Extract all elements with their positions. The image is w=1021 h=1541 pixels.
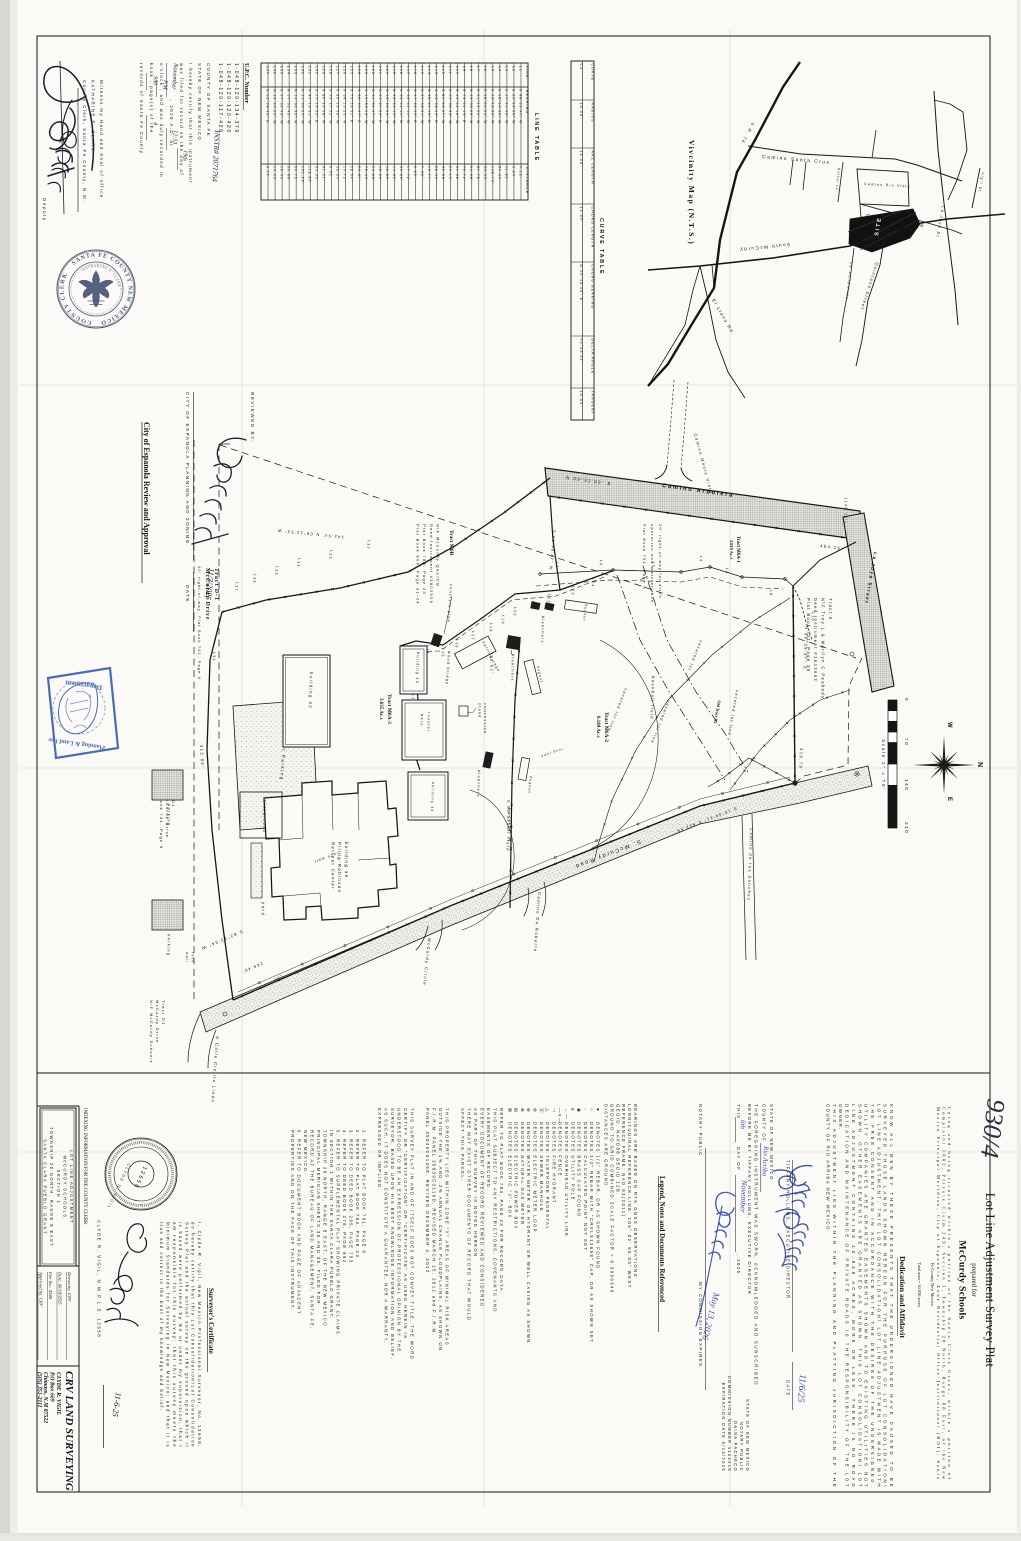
svg-text:N 27°38'21" W: N 27°38'21" W (420, 89, 424, 125)
svg-text:LINE ADJUSTMENT CONTAINS 10.83: LINE ADJUSTMENT CONTAINS 10.838 ACRES, M… (851, 1104, 856, 1488)
svg-text:⊗: ⊗ (533, 1108, 538, 1113)
svg-text:91.51': 91.51' (322, 166, 326, 181)
svg-text:L28: L28 (329, 66, 333, 75)
svg-text:Dedication and Affidavit: Dedication and Affidavit (898, 1256, 907, 1338)
svg-text:L10: L10 (455, 66, 459, 75)
svg-text:RECORD AT THE BUREAU OF LAND M: RECORD AT THE BUREAU OF LAND MANAGEMENT,… (310, 1130, 315, 1330)
svg-text:⊣: ⊣ (551, 1108, 556, 1114)
svg-text:30.03': 30.03' (483, 166, 487, 181)
svg-text:DAY OF: DAY OF (736, 1147, 741, 1171)
svg-text:118.85': 118.85' (308, 166, 312, 184)
svg-text:Rio Arriba: Rio Arriba (760, 1145, 770, 1177)
svg-text:S 01°22'50" W: S 01°22'50" W (476, 89, 480, 124)
svg-text:50.00': 50.00' (315, 166, 319, 181)
svg-text:STATE OF NEW MEXICO: STATE OF NEW MEXICO (197, 63, 202, 141)
svg-text:7.12': 7.12' (518, 166, 522, 179)
svg-text:40' right-of-way, Plat Book 76: 40' right-of-way, Plat Book 761, Page 6 (197, 566, 201, 680)
svg-text:DENOTES UTILITY POLE: DENOTES UTILITY POLE (570, 1122, 575, 1201)
svg-text:N 56°48'56" E: N 56°48'56" E (579, 265, 583, 302)
svg-text:AS PART OF THIS SURVEY IS NOTE: AS PART OF THIS SURVEY IS NOTED HEREON. (473, 1108, 478, 1260)
svg-text:L18: L18 (399, 66, 403, 75)
svg-text:L17: L17 (406, 66, 410, 75)
svg-text:14.90': 14.90' (272, 166, 276, 181)
svg-text:S 86°32'08" W: S 86°32'08" W (322, 89, 326, 124)
svg-text:⊗: ⊗ (526, 1108, 531, 1113)
svg-text:GROUND TO GRID COMBINED SCALE: GROUND TO GRID COMBINED SCALE FACTOR = 0… (609, 1104, 614, 1294)
svg-text:19th: 19th (181, 150, 188, 161)
svg-text:L14: L14 (427, 66, 431, 75)
svg-text:DATE: DATE (786, 1380, 791, 1397)
svg-text:Tract 6: Tract 6 (828, 598, 833, 621)
svg-text:L35: L35 (279, 66, 283, 75)
svg-text:THIS PROPERTY LIES WITHIN ZONE: THIS PROPERTY LIES WITHIN ZONE "X" AREAS… (445, 1108, 450, 1346)
svg-text:3. REFER TO DEED BOOK 295, P: 3. REFER TO DEED BOOK 295, PAGE 753 (349, 1130, 354, 1264)
svg-text:LOT LINE ADJUSTMENT. THIS LOT: LOT LINE ADJUSTMENT. THIS LOT CONSOLIDAT… (876, 1104, 881, 1488)
svg-text:N\F McCurdy QALICB: N\F McCurdy QALICB (435, 524, 440, 587)
svg-text:12:53: 12:53 (171, 130, 178, 144)
svg-text:THIS SURVEY PLAT IN AND OF ITS: THIS SURVEY PLAT IN AND OF ITSELF DOES N… (410, 1108, 415, 1360)
svg-text:Retreat Center: Retreat Center (330, 842, 335, 890)
svg-text:TOWNSHIP 20 NORTH, RANGE 8 EAS: TOWNSHIP 20 NORTH, RANGE 8 EAST, OF THE … (323, 1130, 328, 1327)
svg-text:4: 4 (152, 122, 159, 125)
svg-text:S 75°59'31" E: S 75°59'31" E (350, 89, 354, 124)
svg-text:S 84°53'27" W: S 84°53'27" W (441, 89, 445, 124)
svg-text:BEARING: BEARING (525, 90, 529, 115)
svg-text:81.78': 81.78' (476, 166, 480, 181)
svg-text:28.43': 28.43' (434, 166, 438, 181)
svg-text:S 75°54'13" E: S 75°54'13" E (462, 89, 466, 124)
svg-text:CRV LAND SURVEYING: CRV LAND SURVEYING (63, 1371, 75, 1491)
svg-text:PRINCIPAL MERIDIAN SHEETS 35 A: PRINCIPAL MERIDIAN SHEETS 35 AND 35, FIL… (316, 1130, 321, 1305)
svg-text:30.88': 30.88' (287, 166, 291, 181)
svg-text:79.72': 79.72' (462, 166, 466, 181)
svg-text:N 19°53'02" W: N 19°53'02" W (469, 89, 473, 125)
svg-text:THERE MAY EXIST OTHER DOCUMENT: THERE MAY EXIST OTHER DOCUMENTS OF RECOR… (467, 1108, 472, 1321)
svg-text:REFER TO PLAT BOOK 783, PAGE 2: REFER TO PLAT BOOK 783, PAGE 23 FOR RECO… (499, 1108, 504, 1295)
svg-text:MY COMMISSION EXPIRES: MY COMMISSION EXPIRES (698, 1282, 703, 1367)
svg-text:Drawn by: CRV: Drawn by: CRV (67, 1271, 72, 1303)
svg-text:N 07°02'42" W: N 07°02'42" W (279, 89, 283, 125)
svg-text:yard: yard (261, 902, 266, 917)
svg-text:L23: L23 (364, 66, 368, 75)
svg-text:COUNTY OF SANTA FE: COUNTY OF SANTA FE (206, 63, 211, 137)
svg-text:930: 930 (151, 76, 158, 85)
svg-text:CERTIFY OR "CERTIFICATION" OR: CERTIFY OR "CERTIFICATION" OR "CERTIFICA… (403, 1108, 408, 1339)
svg-text:6.92': 6.92' (329, 166, 333, 179)
svg-text:RADIUS: RADIUS (591, 103, 595, 123)
svg-text:L33: L33 (294, 66, 298, 75)
svg-text:11/6/25: 11/6/25 (795, 1374, 807, 1403)
svg-text:COUNTY OF RIO ARRIBA NEW MEXIC: COUNTY OF RIO ARRIBA NEW MEXICO (826, 1104, 831, 1231)
svg-text:101.26': 101.26' (301, 166, 305, 184)
svg-text:NEW MEXICO.: NEW MEXICO. (303, 1130, 308, 1175)
svg-text:CITY OF ESPANOLA PLANNING AND: CITY OF ESPANOLA PLANNING AND ZONING (185, 392, 190, 545)
svg-text:L3: L3 (725, 568, 729, 575)
svg-text:S 86°26'56" W: S 86°26'56" W (336, 89, 340, 124)
svg-text:DENOTES CALCULATED POINT NOT S: DENOTES CALCULATED POINT NOT SET (583, 1122, 588, 1251)
svg-text:BEARINGS ARE BASED ON RTK GNSS: BEARINGS ARE BASED ON RTK GNSS OBSERVATI… (633, 1104, 638, 1278)
svg-text:Surveyor's Certificate: Surveyor's Certificate (207, 1288, 215, 1354)
svg-text:18.69': 18.69' (378, 166, 382, 181)
svg-text:16.43': 16.43' (279, 166, 283, 181)
svg-text:F.I.R.M. PANEL 35039C3110D, RE: F.I.R.M. PANEL 35039C3110D, REVISED MARC… (432, 1108, 437, 1336)
svg-text:Scale 1" = 70': Scale 1" = 70' (880, 739, 886, 791)
svg-text:L16: L16 (413, 66, 417, 75)
svg-text:△: △ (545, 1108, 550, 1113)
svg-text:N 42°29'03" W: N 42°29'03" W (385, 89, 389, 125)
svg-text:Tract M6B: Tract M6B (448, 530, 454, 556)
svg-text:17.72': 17.72' (406, 166, 410, 181)
svg-text:10.00': 10.00' (579, 103, 583, 119)
svg-text:28.94': 28.94' (350, 166, 354, 181)
svg-text:CURVE: CURVE (591, 64, 595, 82)
svg-text:L31: L31 (308, 66, 312, 75)
svg-text:barn: barn (420, 714, 424, 727)
svg-text:rock: rock (191, 952, 195, 964)
svg-text:S 17°19'50" E: S 17°19'50" E (315, 89, 319, 124)
svg-text:SHOWN. OTHER EASEMENTS ARE GRA: SHOWN. OTHER EASEMENTS ARE GRANTED AS SH… (857, 1104, 862, 1488)
svg-text:S 13°52'16" W: S 13°52'16" W (455, 89, 459, 124)
svg-text:DENOTES 1/2" REBAR, OR AS SHOW: DENOTES 1/2" REBAR, OR AS SHOWN FOUND (596, 1122, 601, 1270)
svg-text:L2: L2 (511, 66, 515, 72)
svg-text:SECTION 1: SECTION 1 (56, 1170, 61, 1205)
svg-text:CURVE TABLE: CURVE TABLE (598, 218, 604, 275)
svg-text:Legend, Notes and Documents Re: Legend, Notes and Documents Referenced (658, 1176, 666, 1302)
svg-text:N 05°06'33" W: N 05°06'33" W (448, 89, 452, 125)
svg-text:Deputy: Deputy (42, 198, 47, 222)
svg-text:L7: L7 (476, 66, 480, 72)
svg-text:OUTSIDE THE 1% AND .2% ANNUAL: OUTSIDE THE 1% AND .2% ANNUAL CHANCE FLO… (438, 1108, 443, 1352)
svg-text:L34: L34 (287, 66, 291, 75)
svg-text:◉: ◉ (577, 1108, 582, 1114)
svg-text:N 07°02'42" W: N 07°02'42" W (287, 89, 291, 125)
svg-text:L18: L18 (489, 623, 493, 633)
svg-text:DENOTES FIRE HYDRANT: DENOTES FIRE HYDRANT (551, 1122, 556, 1204)
svg-text:COUNTY OF: COUNTY OF (762, 1104, 767, 1142)
svg-text:L26: L26 (343, 66, 347, 75)
svg-text:am responsible for this survey: am responsible for this survey; that thi… (172, 1222, 177, 1448)
svg-text:N 19°53'02" W: N 19°53'02" W (364, 89, 368, 125)
svg-text:DENOTES BRASS CAP FOUND: DENOTES BRASS CAP FOUND (577, 1122, 582, 1218)
svg-text:Tract D1: Tract D1 (161, 1000, 166, 1026)
svg-text:L8: L8 (769, 590, 773, 597)
svg-text:DENOTES SEWER MANHOLE: DENOTES SEWER MANHOLE (539, 1122, 544, 1212)
svg-text:18.85': 18.85' (385, 166, 389, 181)
svg-text:20' right-of-way for ditch: 20' right-of-way for ditch (658, 524, 663, 599)
svg-text:Approved by: CRV: Approved by: CRV (39, 1271, 44, 1308)
svg-text:1-048-120-134-379: 1-048-120-134-379 (233, 63, 239, 134)
svg-text:DENOTES WATER METER OR HYDRANT: DENOTES WATER METER OR HYDRANT OR WELL C… (526, 1122, 531, 1344)
svg-text:N\F McCurdy Schools: N\F McCurdy Schools (149, 1000, 154, 1064)
svg-text:3.84': 3.84' (511, 166, 515, 179)
svg-text:Vivcinity Map (N.T.S.): Vivcinity Map (N.T.S.) (687, 140, 696, 245)
svg-text:W: W (946, 722, 952, 730)
svg-text:I, Clyde R. Vigil, New Mexico: I, Clyde R. Vigil, New Mexico Profession… (197, 1222, 202, 1448)
svg-text:S 17°31'08" W: S 17°31'08" W (504, 89, 508, 124)
svg-text:Piling-Robinson: Piling-Robinson (337, 842, 342, 893)
svg-text:L19: L19 (501, 615, 505, 625)
svg-text:Ⓢ: Ⓢ (538, 1108, 545, 1114)
svg-text:building 36: building 36 (344, 842, 349, 878)
svg-text:TIFFANY HOLLUMS, EXECUTIVE DIR: TIFFANY HOLLUMS, EXECUTIVE DIRECTOR (786, 1160, 791, 1300)
svg-text:57.40': 57.40' (497, 166, 501, 181)
svg-text:N 37°27'53" E: N 37°27'53" E (378, 89, 382, 124)
svg-text:L25: L25 (350, 66, 354, 75)
svg-text:140: 140 (904, 779, 909, 791)
svg-text:L15: L15 (420, 66, 424, 75)
svg-text:L20: L20 (513, 607, 517, 617)
svg-text:24.68': 24.68' (371, 166, 375, 181)
svg-text:N 35°41'11" W: N 35°41'11" W (406, 89, 410, 124)
svg-text:DENOTES ELECTRIC "J"- BOX: DENOTES ELECTRIC "J"- BOX (507, 1122, 512, 1219)
svg-text:⊞: ⊞ (514, 1108, 519, 1113)
svg-text:NOTARY PUBLIC: NOTARY PUBLIC (698, 1104, 703, 1157)
svg-text:Tract D-1: Tract D-1 (213, 568, 219, 601)
svg-text:L37: L37 (265, 66, 269, 75)
svg-text:L20: L20 (385, 66, 389, 75)
svg-text:L3: L3 (504, 66, 508, 72)
svg-text:P.O Box 669: P.O Box 669 (49, 1372, 55, 1402)
svg-text:UNDERSTOOD TO BE AN EXPRESSION: UNDERSTOOD TO BE AN EXPRESSION OF PROFES… (397, 1108, 402, 1353)
svg-text:6th: 6th (739, 1120, 747, 1130)
svg-text:TOWNSHIP 20 NORTH, RANGE 8 EAS: TOWNSHIP 20 NORTH, RANGE 8 EAST (49, 1127, 54, 1247)
svg-text:L9: L9 (462, 66, 466, 72)
svg-text:DENOTES FENCE: DENOTES FENCE (558, 1122, 563, 1177)
svg-text:◦: ◦ (583, 1108, 588, 1111)
svg-text:parking: parking (166, 934, 172, 957)
svg-text:Minimum Standards for Surveyin: Minimum Standards for Surveying in New M… (166, 1222, 171, 1448)
svg-text:concession: concession (483, 703, 487, 735)
svg-text:OWNER.: OWNER. (838, 1104, 843, 1131)
svg-text:I hereby certify that this ins: I hereby certify that this instrument (188, 63, 193, 184)
svg-text:REVIEWED BY:: REVIEWED BY: (250, 392, 255, 443)
svg-text:EVERY DOCUMENT OF RECORD REVIE: EVERY DOCUMENT OF RECORD REVIEWED AND CO… (480, 1108, 485, 1307)
svg-text:4. REFER TO DEED BOOK 278, P: 4. REFER TO DEED BOOK 278, PAGE 892. (342, 1130, 347, 1266)
svg-text:N 14°36'24" W: N 14°36'24" W (301, 89, 305, 125)
svg-text:Plat Book 783, Page 23: Plat Book 783, Page 23 (422, 524, 427, 595)
svg-text:L30: L30 (315, 66, 319, 75)
svg-text:LINE: LINE (525, 66, 529, 79)
svg-text:CLYDE R. VIGIL: CLYDE R. VIGIL (55, 1372, 61, 1416)
svg-text:6.184 Ac.±: 6.184 Ac.± (595, 716, 600, 738)
svg-text:SANTA CLARA PUEBLO GRANT: SANTA CLARA PUEBLO GRANT (43, 1139, 48, 1235)
svg-text:KNOW ALL MEN BY THESE PRESENTS: KNOW ALL MEN BY THESE PRESENTS THAT THE … (889, 1104, 894, 1488)
svg-text:L22: L22 (371, 66, 375, 75)
svg-text:is based were performed by me: is based were performed by me or under m… (178, 1222, 183, 1448)
svg-text:N 14°00'32" W: N 14°00'32" W (294, 89, 298, 125)
svg-text:CHORD LENGTH: CHORD LENGTH (591, 207, 595, 249)
svg-text:File No.: 4348: File No.: 4348 (48, 1271, 53, 1300)
svg-text:108.70': 108.70' (490, 166, 494, 184)
svg-text:THIS: THIS (736, 1104, 741, 1119)
svg-text:←—: ←— (564, 1108, 569, 1120)
svg-text:DELTA ANGLE: DELTA ANGLE (591, 339, 595, 375)
svg-text:Witness my Hand and Seal of of: Witness my Hand and Seal of office (99, 80, 104, 199)
svg-text:EXPIRATION DATE 5/13/2026: EXPIRATION DATE 5/13/2026 (721, 1383, 726, 1472)
svg-text:do hereby certify that this Lo: do hereby certify that this Lot Consolid… (191, 1222, 196, 1448)
svg-text:2. REFER TO PLAT BOOK 783, P: 2. REFER TO PLAT BOOK 783, PAGE 23 (355, 1130, 360, 1258)
svg-text:19.77': 19.77' (427, 166, 431, 181)
svg-text:L23: L23 (571, 586, 575, 596)
svg-text:DISTANCE: DISTANCE (525, 167, 529, 194)
svg-text:McCurdy Schools: McCurdy Schools (957, 1240, 968, 1319)
svg-text:(505) 351-2111: (505) 351-2111 (36, 1372, 43, 1408)
svg-text:11.89': 11.89' (504, 166, 508, 181)
svg-text:DENOTES ELECTRIC METER LOOP: DENOTES ELECTRIC METER LOOP (533, 1122, 538, 1233)
svg-text:N 02°38'49" E: N 02°38'49" E (265, 89, 269, 124)
svg-text:PROPERTIES AND ON THE FACE OF: PROPERTIES AND ON THE FACE OF THIS INSTR… (290, 1130, 295, 1311)
svg-text:38.64': 38.64' (336, 166, 340, 181)
svg-text:L36: L36 (272, 66, 276, 75)
svg-text:N 86°40'47" E: N 86°40'47" E (357, 89, 361, 124)
svg-text:operation and maintenance: operation and maintenance (650, 524, 655, 603)
svg-text:L6: L6 (483, 66, 487, 72)
svg-text:S 30°52'55" W: S 30°52'55" W (511, 89, 515, 124)
svg-text:EXPRESSED OR IMPLIED.: EXPRESSED OR IMPLIED. (377, 1108, 382, 1191)
svg-text:L11: L11 (448, 66, 452, 75)
svg-text:McCurdy Drive: McCurdy Drive (155, 1000, 160, 1044)
svg-text:Plat Book 761, Page 6: Plat Book 761, Page 6 (642, 524, 647, 590)
svg-text:L29: L29 (322, 66, 326, 75)
svg-text:N 28°41'16" E: N 28°41'16" E (427, 89, 431, 124)
svg-text:1-048-120-120-420: 1-048-120-120-420 (225, 63, 231, 134)
svg-text:Plat Book 721, Page 35: Plat Book 721, Page 35 (806, 598, 811, 673)
svg-text:N 02°38'49" E: N 02°38'49" E (434, 89, 438, 124)
svg-text:AS SUCH, IT DOES NOT CONSTITUT: AS SUCH, IT DOES NOT CONSTITUTE A GUARAN… (384, 1108, 389, 1344)
svg-text:THE FOREGOING INSTRUMENT WAS S: THE FOREGOING INSTRUMENT WAS SWORN, ACKN… (754, 1104, 759, 1386)
svg-text:Deed Instrument #1802529: Deed Instrument #1802529 (429, 524, 434, 604)
svg-text:ARC LENGTH: ARC LENGTH (591, 151, 595, 185)
svg-text:DENOTES NATURAL GAS METER: DENOTES NATURAL GAS METER (520, 1122, 525, 1226)
svg-text:P.M.: P.M. (161, 79, 168, 91)
svg-text:L24: L24 (591, 578, 595, 588)
svg-text:S 02°43'56" W: S 02°43'56" W (490, 89, 494, 124)
svg-text:92.98': 92.98' (441, 166, 445, 181)
svg-text:STATE OF NEW MEXICO: STATE OF NEW MEXICO (745, 1399, 750, 1472)
svg-text:Chimayo, N.M 87522: Chimayo, N.M 87522 (42, 1372, 48, 1423)
svg-text:THE FREE CONSENT AND IN ACCORD: THE FREE CONSENT AND IN ACCORDANCE WITH … (870, 1104, 875, 1488)
svg-text:⊠: ⊠ (507, 1108, 512, 1113)
svg-text:0: 0 (904, 698, 909, 702)
svg-text:N 19°40'20" W: N 19°40'20" W (272, 89, 276, 125)
svg-text:N 08°10'23" W: N 08°10'23" W (343, 89, 347, 125)
svg-text:○: ○ (589, 1108, 594, 1112)
svg-text:7.56': 7.56' (420, 166, 424, 179)
svg-text:5. REFER TO SUPPLEMENTAL PLA: 5. REFER TO SUPPLEMENTAL PLAT SHOWING PR… (336, 1130, 341, 1335)
svg-text:GEOID: NAVD88 GEOID 12B.: GEOID: NAVD88 GEOID 12B. (615, 1104, 620, 1196)
svg-text:rooster: rooster (426, 712, 431, 733)
svg-text:L22: L22 (547, 594, 551, 604)
svg-text:16.50': 16.50' (579, 151, 583, 167)
svg-text:N 47°22'25" E: N 47°22'25" E (413, 89, 417, 124)
svg-text:CLYDE R. VIGIL, N.M.P.L.S. 126: CLYDE R. VIGIL, N.M.P.L.S. 12658 (97, 1220, 102, 1338)
svg-text:records of Santa Fe County: records of Santa Fe County (139, 63, 144, 154)
svg-text:N 87°19'31" W: N 87°19'31" W (308, 89, 312, 125)
svg-text:AFFECT THIS PARCEL.: AFFECT THIS PARCEL. (460, 1108, 465, 1182)
svg-text:THIS PLAT SUBJECT TO ANY RESTR: THIS PLAT SUBJECT TO ANY RESTRICTIONS, C… (493, 1108, 498, 1313)
svg-text:3.77': 3.77' (265, 166, 269, 179)
svg-text:LINE TABLE: LINE TABLE (533, 113, 539, 162)
svg-text:L5: L5 (490, 66, 494, 72)
svg-text:EASEMENTS OF RECORD.: EASEMENTS OF RECORD. (486, 1108, 491, 1191)
svg-text:●: ● (596, 1108, 601, 1112)
svg-text:L4: L4 (699, 556, 703, 563)
svg-text:91.98': 91.98' (455, 166, 459, 181)
svg-text:Date: 06/18/2025: Date: 06/18/2025 (58, 1271, 63, 1305)
svg-text:Tract M6A-3: Tract M6A-3 (386, 694, 392, 724)
svg-text:10.83': 10.83' (579, 391, 583, 407)
svg-text:LONGITUDINAL REFERENCE LINE: 1: LONGITUDINAL REFERENCE LINE: 106° 02' 55… (627, 1104, 632, 1289)
svg-text:L31: L31 (212, 652, 216, 662)
svg-text:L24: L24 (357, 66, 361, 75)
svg-text:94.68': 94.68' (469, 166, 473, 181)
svg-text:L12: L12 (441, 66, 445, 75)
svg-text:70: 70 (904, 738, 909, 746)
svg-text:Lot Line Adjustment Survey Pla: Lot Line Adjustment Survey Plat (983, 1193, 997, 1368)
svg-text:210: 210 (904, 822, 909, 834)
svg-text:L16: L16 (455, 639, 459, 649)
svg-text:L6: L6 (599, 560, 603, 567)
svg-text:parking: parking (166, 804, 172, 827)
svg-text:19.72': 19.72' (343, 166, 347, 181)
svg-text:DEDICATION AND MAINTENANCE OF: DEDICATION AND MAINTENANCE OF PRIVATE RO… (845, 1104, 850, 1488)
svg-text:⌀: ⌀ (570, 1108, 575, 1112)
svg-text:November: November (738, 1179, 749, 1214)
svg-text:N 31°51'47" W: N 31°51'47" W (371, 89, 375, 125)
svg-text:McCURDY SCHOOLS: McCURDY SCHOOLS (62, 1156, 67, 1219)
svg-text:CHORD BEARING: CHORD BEARING (591, 265, 595, 310)
svg-text:L15: L15 (441, 648, 445, 658)
svg-text:L1: L1 (518, 66, 522, 72)
svg-text:L4: L4 (497, 66, 501, 72)
svg-text:⊗: ⊗ (520, 1108, 525, 1113)
svg-text:DENOTES OVERHEAD UTILITY LINE: DENOTES OVERHEAD UTILITY LINE (564, 1122, 569, 1237)
svg-text:94°33'42": 94°33'42" (579, 339, 583, 364)
svg-text:6.62': 6.62' (413, 166, 417, 179)
svg-text:DENOTES TELEPHONE PEDESTAL: DENOTES TELEPHONE PEDESTAL (545, 1122, 550, 1230)
svg-text:L27: L27 (336, 66, 340, 75)
svg-text:Survey Plat and the actual sur: Survey Plat and the actual survey on the… (184, 1222, 189, 1448)
svg-text:SURVEYOR, BASED UPON HIS BEST: SURVEYOR, BASED UPON HIS BEST KNOWLEDGE … (390, 1108, 395, 1360)
svg-text:14.89': 14.89' (392, 166, 396, 181)
svg-text:1.019 Ac.±: 1.019 Ac.± (729, 540, 734, 560)
svg-text:1. REFER TO PLAT BOOK 761, P: 1. REFER TO PLAT BOOK 761, PAGE 6 (362, 1130, 367, 1254)
svg-text:14.69': 14.69' (579, 207, 583, 223)
svg-text:NOTARY PUBLIC: NOTARY PUBLIC (739, 1422, 744, 1472)
svg-text:Tract M6A-2: Tract M6A-2 (603, 712, 609, 742)
svg-text:THIS ADJUSTMENT LIES WITHIN TH: THIS ADJUSTMENT LIES WITHIN THE PLANNING… (832, 1104, 837, 1488)
svg-text:prepared for: prepared for (970, 1263, 977, 1297)
svg-text:N 26°54'15" W: N 26°54'15" W (392, 89, 396, 125)
svg-text:L21: L21 (378, 66, 382, 75)
svg-text:33.35': 33.35' (399, 166, 403, 181)
svg-text:DISTANCES ARE GROUND: DISTANCES ARE GROUND (604, 1104, 609, 1187)
svg-text:INDEXING INFORMATION FOR THE C: INDEXING INFORMATION FOR THE COUNTY CLER… (82, 1108, 87, 1225)
svg-text:S 06°04'33" W: S 06°04'33" W (497, 89, 501, 124)
svg-text:City of Espanola Review and Ap: City of Espanola Review and Approval (142, 422, 151, 555)
svg-text:DATE: DATE (185, 585, 190, 603)
svg-text:20.87': 20.87' (357, 166, 361, 181)
svg-text:IN SECTION 1 WITHIN THE SANTA: IN SECTION 1 WITHIN THE SANTA CLARA PUEB… (329, 1130, 334, 1320)
svg-text:TANGENT: TANGENT (591, 391, 595, 416)
svg-text:true and correct to the best o: true and correct to the best of my knowl… (159, 1222, 164, 1411)
svg-text:N 35°41'11" W: N 35°41'11" W (399, 89, 403, 124)
svg-text:DAINA PACHECO: DAINA PACHECO (733, 1421, 738, 1472)
svg-text:S 88°39'47" W: S 88°39'47" W (518, 89, 522, 124)
svg-text:DENOTES 1/2" REBAR WITH "CRVLS: DENOTES 1/2" REBAR WITH "CRVLS12658" CAP… (589, 1122, 594, 1343)
svg-text:Deed Instrument #1643662: Deed Instrument #1643662 (813, 598, 818, 682)
svg-text:PANEL 35049C0135E, REVISED DEC: PANEL 35049C0135E, REVISED DECEMBER 4, 2… (425, 1108, 430, 1274)
